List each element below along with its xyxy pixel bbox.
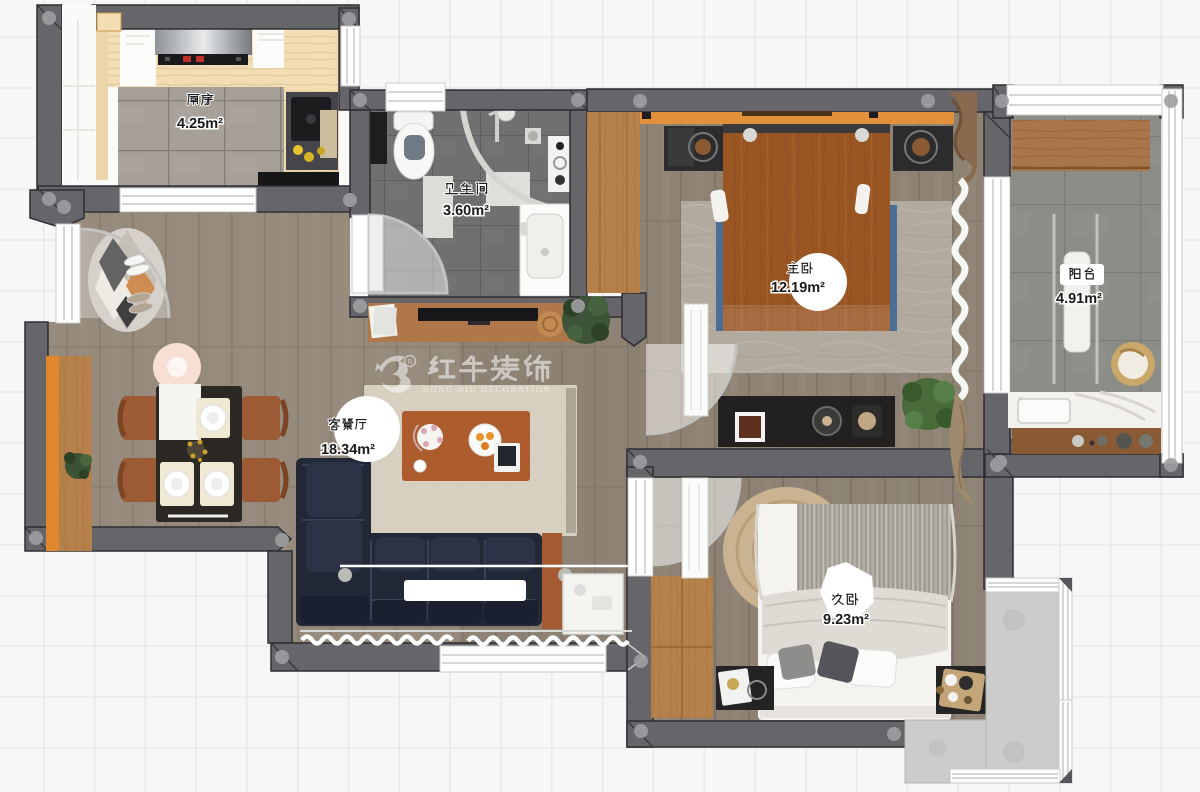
- svg-text:9.23m²: 9.23m²: [823, 612, 869, 628]
- svg-text:12.19m²: 12.19m²: [771, 280, 825, 296]
- svg-text:4.25m²: 4.25m²: [177, 116, 223, 132]
- svg-text:HONG NIU DECORATION: HONG NIU DECORATION: [423, 384, 552, 394]
- svg-text:R: R: [407, 359, 412, 366]
- svg-text:3.60m²: 3.60m²: [443, 203, 489, 219]
- svg-text:18.34m²: 18.34m²: [321, 442, 375, 458]
- svg-text:4.91m²: 4.91m²: [1056, 291, 1102, 307]
